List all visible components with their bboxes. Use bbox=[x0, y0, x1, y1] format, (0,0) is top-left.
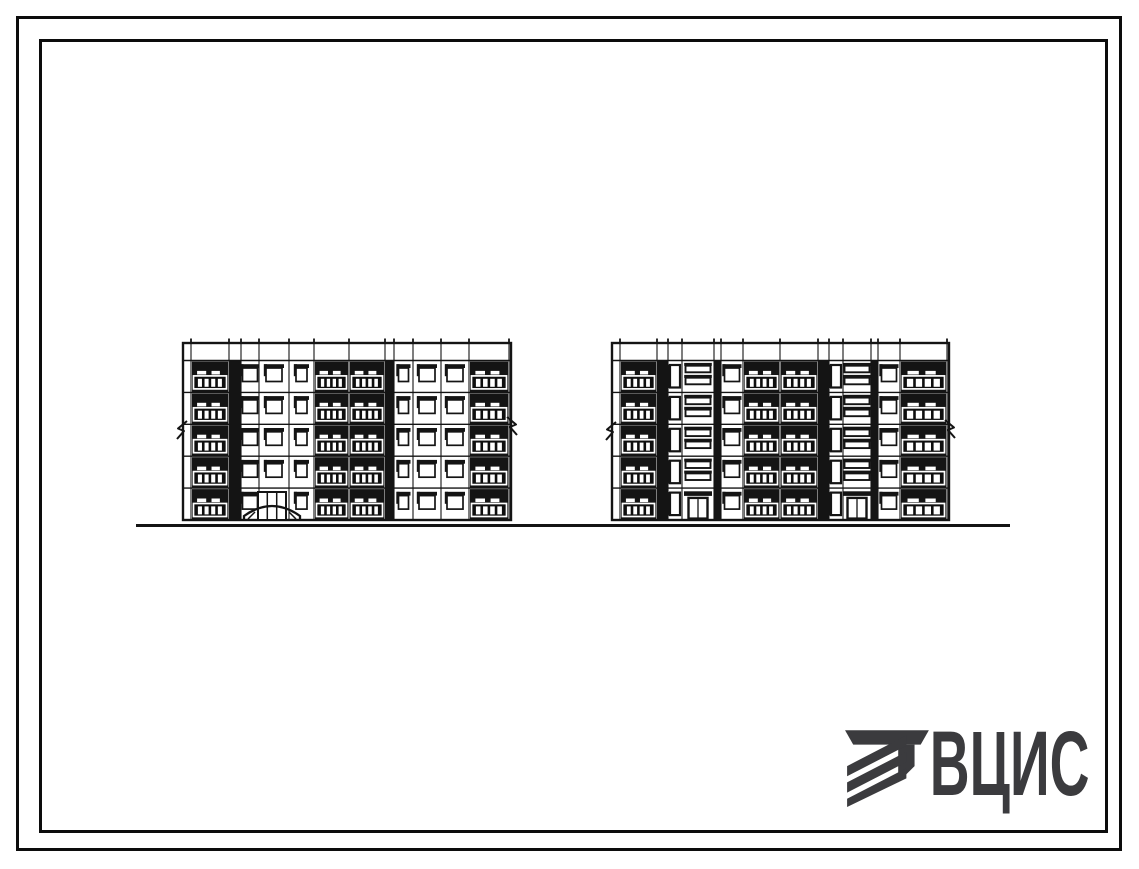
entrance-canopy bbox=[684, 491, 712, 496]
entrance-canopy bbox=[843, 491, 871, 496]
drawing-sheet: ВЦИС bbox=[0, 0, 1139, 869]
right-building bbox=[612, 339, 949, 521]
left-building bbox=[183, 339, 511, 521]
building-elevations-drawing bbox=[0, 0, 1139, 869]
